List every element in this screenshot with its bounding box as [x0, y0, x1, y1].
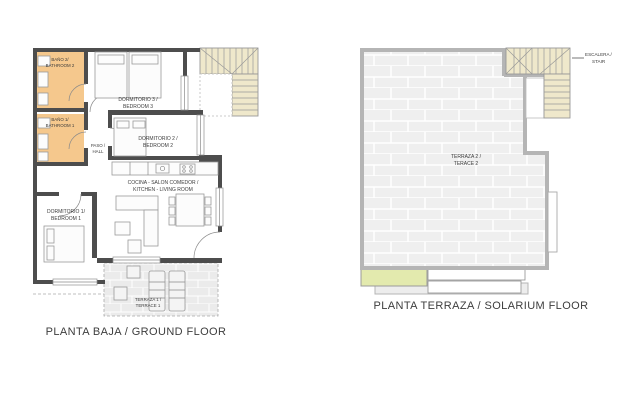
svg-text:BAÑO 2/: BAÑO 2/: [51, 57, 69, 62]
single-beds-bedroom-3: [95, 52, 161, 98]
room-label-terrace-2: TERRAZA 2 / TERACE 2: [451, 154, 482, 167]
floorplan-sheet: BAÑO 2/ BATHROOM 2 BAÑO 1/ BATHROOM 1 DO…: [0, 0, 620, 415]
sofa: [115, 196, 158, 253]
ground-floor-caption: PLANTA BAJA / GROUND FLOOR: [24, 326, 248, 338]
svg-text:STAIR: STAIR: [592, 59, 606, 64]
svg-text:BAÑO 1/: BAÑO 1/: [51, 117, 69, 122]
dining-table: [169, 194, 211, 226]
stair-void: [526, 78, 544, 118]
svg-text:DORMITORIO 3 /: DORMITORIO 3 /: [118, 97, 158, 103]
solarium-floor-caption: PLANTA TERRAZA / SOLARIUM FLOOR: [368, 300, 594, 312]
svg-text:BEDROOM 2: BEDROOM 2: [143, 143, 173, 149]
kitchen-counter: [112, 162, 218, 175]
bed-bedroom-1: [44, 226, 84, 262]
svg-text:BEDROOM 3: BEDROOM 3: [123, 104, 153, 110]
room-label-bedroom-3: DORMITORIO 3 / BEDROOM 3: [118, 97, 158, 110]
room-label-bedroom-1: DORMITORIO 1/ BEDROOM 1: [47, 209, 86, 222]
room-label-terrace-1: TERRAZA 1 / TERRACE 1: [135, 297, 162, 308]
svg-text:TERRAZA 1 /: TERRAZA 1 /: [135, 297, 162, 302]
room-label-kitchen-living: COCINA - SALON COMEDOR / KITCHEN - LIVIN…: [128, 180, 199, 193]
svg-text:TERACE 2: TERACE 2: [454, 161, 479, 167]
room-label-stair: ESCALERA / STAIR: [585, 52, 613, 64]
svg-text:COCINA - SALON COMEDOR /: COCINA - SALON COMEDOR /: [128, 180, 199, 186]
svg-text:TERRAZA 2 /: TERRAZA 2 /: [451, 154, 482, 160]
svg-text:PASO /: PASO /: [91, 143, 106, 148]
svg-text:BATHROOM 2: BATHROOM 2: [46, 63, 75, 68]
ground-floor-stairs: [200, 48, 258, 116]
room-label-bedroom-2: DORMITORIO 2 / BEDROOM 2: [138, 136, 178, 149]
side-railing: [548, 192, 557, 252]
svg-text:DORMITORIO 1/: DORMITORIO 1/: [47, 209, 86, 215]
planter: [361, 269, 427, 286]
ground-floor-plan: BAÑO 2/ BATHROOM 2 BAÑO 1/ BATHROOM 1 DO…: [20, 40, 270, 330]
svg-text:HALL: HALL: [93, 149, 105, 154]
svg-text:KITCHEN - LIVING ROOM: KITCHEN - LIVING ROOM: [133, 187, 193, 193]
svg-text:BEDROOM 1: BEDROOM 1: [51, 216, 81, 222]
svg-text:DORMITORIO 2 /: DORMITORIO 2 /: [138, 136, 178, 142]
room-label-hall: PASO / HALL: [91, 143, 106, 154]
exterior-steps: [428, 268, 525, 293]
svg-text:TERRACE 1: TERRACE 1: [136, 303, 161, 308]
svg-text:BATHROOM 1: BATHROOM 1: [46, 123, 75, 128]
svg-text:ESCALERA /: ESCALERA /: [585, 52, 613, 57]
solarium-floor-plan: ESCALERA / STAIR TERRAZA 2 / TERACE 2: [348, 40, 620, 300]
